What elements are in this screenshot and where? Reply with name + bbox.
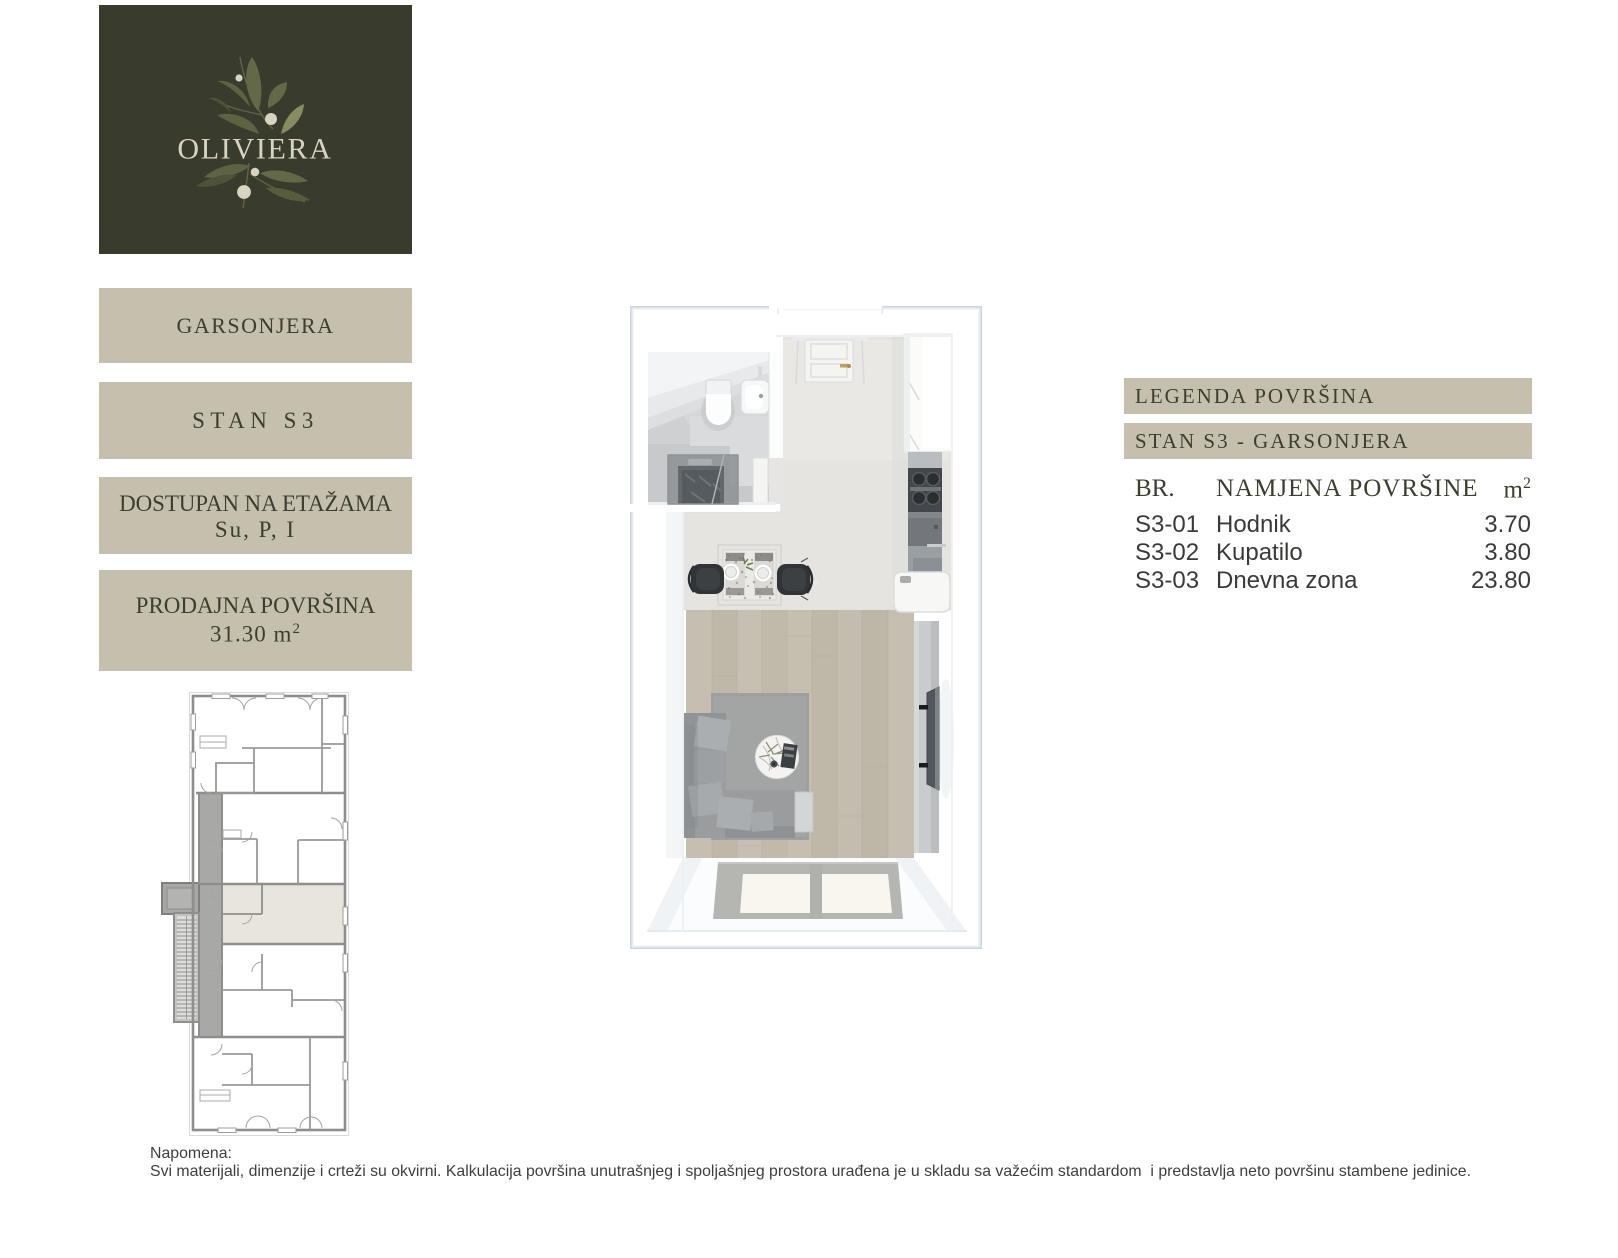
svg-text:OLIVIERA: OLIVIERA [177, 133, 332, 166]
